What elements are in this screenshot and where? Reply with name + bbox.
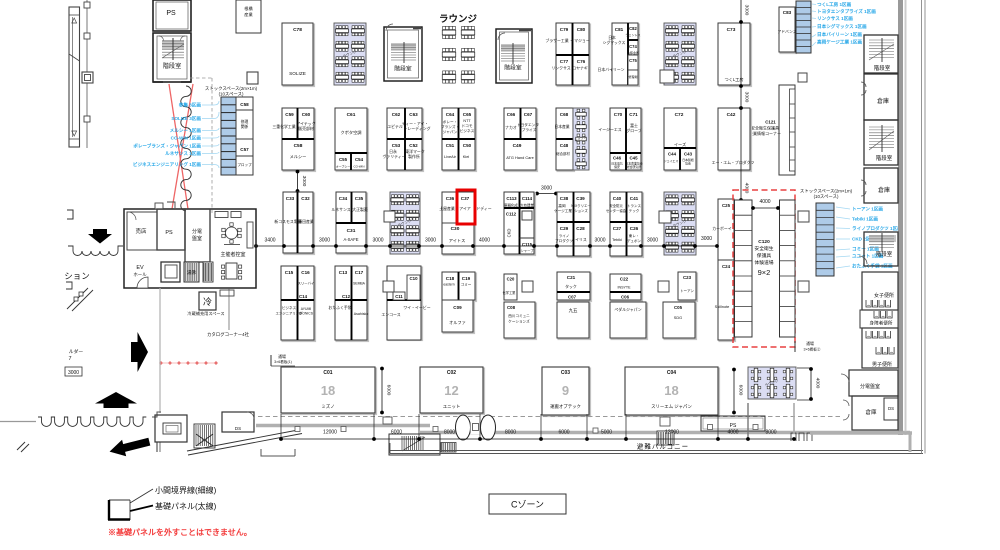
svg-text:高岡: 高岡 bbox=[558, 203, 566, 208]
svg-text:C48: C48 bbox=[560, 143, 569, 148]
svg-text:INSYTE: INSYTE bbox=[618, 286, 632, 290]
svg-text:ドディー: ドディー bbox=[476, 206, 491, 211]
svg-text:C45: C45 bbox=[629, 156, 638, 161]
svg-text:C75: C75 bbox=[629, 58, 637, 63]
svg-text:テック: テック bbox=[629, 208, 640, 213]
svg-text:SEMBA: SEMBA bbox=[353, 282, 366, 286]
svg-text:C13: C13 bbox=[339, 270, 348, 275]
svg-text:佐藤金属: 佐藤金属 bbox=[627, 50, 639, 55]
svg-text:C52: C52 bbox=[409, 143, 418, 148]
svg-text:大有建業: 大有建業 bbox=[520, 203, 534, 208]
svg-text:ブランズ・: ブランズ・ bbox=[441, 124, 459, 129]
svg-text:C34: C34 bbox=[339, 196, 348, 201]
svg-text:小間境界線(細線): 小間境界線(細線) bbox=[155, 485, 217, 495]
svg-text:メルシー: メルシー bbox=[290, 154, 307, 159]
svg-text:C39: C39 bbox=[576, 196, 585, 201]
svg-text:ライノプロダクツ 1区画: ライノプロダクツ 1区画 bbox=[852, 225, 902, 232]
svg-text:4000: 4000 bbox=[815, 378, 821, 389]
svg-text:盤室: 盤室 bbox=[192, 235, 202, 242]
svg-text:C58: C58 bbox=[294, 143, 303, 149]
svg-text:タック: タック bbox=[565, 284, 577, 289]
svg-text:18: 18 bbox=[664, 383, 678, 398]
svg-text:C41: C41 bbox=[630, 196, 639, 201]
svg-text:BIONICS: BIONICS bbox=[299, 312, 314, 316]
svg-text:4000: 4000 bbox=[727, 430, 738, 436]
svg-text:倉庫: 倉庫 bbox=[865, 408, 877, 416]
svg-text:A-SAFE: A-SAFE bbox=[343, 237, 358, 242]
svg-text:C16: C16 bbox=[301, 270, 310, 275]
svg-text:※基礎パネルを外すことはできません。: ※基礎パネルを外すことはできません。 bbox=[108, 527, 252, 537]
svg-text:エー・エム・プロダクツ: エー・エム・プロダクツ bbox=[712, 160, 755, 165]
svg-text:3000: 3000 bbox=[541, 186, 552, 192]
svg-text:ケージ工業: ケージ工業 bbox=[554, 208, 572, 213]
svg-text:C62: C62 bbox=[392, 112, 401, 117]
svg-text:ホール: ホール bbox=[133, 272, 147, 277]
svg-text:C04: C04 bbox=[667, 370, 676, 376]
svg-text:DS: DS bbox=[888, 406, 894, 411]
svg-text:eastern: eastern bbox=[443, 283, 454, 287]
svg-text:階段室: 階段室 bbox=[394, 65, 412, 73]
svg-text:運搬オプテック: 運搬オプテック bbox=[550, 403, 581, 410]
svg-text:C60: C60 bbox=[302, 112, 311, 117]
svg-text:日本バイリーン: 日本バイリーン bbox=[597, 67, 624, 72]
svg-text:C01: C01 bbox=[323, 370, 332, 376]
svg-text:男子便所: 男子便所 bbox=[872, 361, 892, 368]
svg-text:C05: C05 bbox=[674, 305, 683, 310]
svg-text:企業情報コーナー: 企業情報コーナー bbox=[749, 130, 781, 136]
svg-text:7: 7 bbox=[68, 356, 71, 362]
svg-text:大正製薬: 大正製薬 bbox=[352, 207, 368, 212]
svg-text:6000: 6000 bbox=[738, 385, 744, 396]
svg-text:C79: C79 bbox=[560, 27, 569, 32]
svg-text:分電: 分電 bbox=[192, 228, 202, 235]
svg-text:C20: C20 bbox=[507, 277, 515, 282]
svg-text:ションズ: ションズ bbox=[574, 208, 588, 213]
svg-text:ルネサンス: ルネサンス bbox=[331, 207, 350, 212]
svg-text:ポレー・: ポレー・ bbox=[443, 119, 458, 124]
svg-text:関係: 関係 bbox=[241, 124, 249, 129]
svg-text:トヨタエンタ: トヨタエンタ bbox=[517, 122, 539, 127]
svg-text:主催者控室: 主催者控室 bbox=[220, 251, 245, 258]
svg-text:C82: C82 bbox=[629, 26, 637, 31]
svg-text:3000: 3000 bbox=[372, 238, 383, 244]
svg-text:C66: C66 bbox=[507, 112, 516, 117]
svg-text:センター協会: センター協会 bbox=[606, 208, 627, 213]
svg-text:東レ・: 東レ・ bbox=[629, 233, 640, 238]
svg-text:C54: C54 bbox=[355, 157, 364, 162]
svg-text:ドコモ: ドコモ bbox=[461, 124, 472, 128]
svg-text:C08: C08 bbox=[507, 305, 516, 310]
svg-text:メルシー 1区画: メルシー 1区画 bbox=[170, 127, 202, 134]
svg-text:C38: C38 bbox=[560, 196, 569, 201]
svg-text:ション: ション bbox=[64, 271, 90, 281]
svg-text:日本産業: 日本産業 bbox=[554, 124, 569, 129]
svg-text:6000: 6000 bbox=[386, 385, 392, 396]
svg-text:カーボーイ: カーボーイ bbox=[712, 226, 732, 231]
svg-text:イージーエス: イージーエス bbox=[598, 127, 621, 132]
svg-text:西川コミュニ: 西川コミュニ bbox=[508, 313, 530, 318]
svg-text:C07: C07 bbox=[568, 295, 577, 300]
svg-text:階段室: 階段室 bbox=[163, 62, 182, 70]
svg-text:C55: C55 bbox=[339, 157, 348, 162]
svg-text:MIXクリエー: MIXクリエー bbox=[571, 203, 591, 208]
svg-text:Tebiki: Tebiki bbox=[612, 237, 622, 242]
svg-text:C10: C10 bbox=[409, 276, 418, 281]
svg-text:Tebiki 1区画: Tebiki 1区画 bbox=[852, 216, 878, 223]
svg-text:根橋: 根橋 bbox=[244, 5, 253, 12]
svg-text:C49: C49 bbox=[513, 143, 522, 149]
svg-text:避難バルコニー: 避難バルコニー bbox=[637, 442, 689, 451]
svg-text:カタログコーナー4社: カタログコーナー4社 bbox=[207, 331, 250, 338]
svg-text:プロップ: プロップ bbox=[237, 162, 252, 167]
svg-text:8000: 8000 bbox=[505, 430, 516, 436]
svg-text:C77: C77 bbox=[560, 59, 569, 64]
svg-text:12: 12 bbox=[444, 383, 458, 398]
svg-text:アドバンス: アドバンス bbox=[777, 29, 796, 34]
svg-text:3000: 3000 bbox=[68, 370, 79, 376]
svg-text:3000: 3000 bbox=[744, 92, 750, 103]
svg-text:C57: C57 bbox=[240, 147, 249, 152]
svg-text:倉庫: 倉庫 bbox=[877, 97, 889, 105]
svg-text:C28: C28 bbox=[576, 226, 585, 231]
svg-text:AYUMI: AYUMI bbox=[301, 307, 312, 311]
svg-text:C120: C120 bbox=[758, 239, 770, 245]
svg-text:C73: C73 bbox=[727, 27, 736, 33]
svg-text:イリス: イリス bbox=[575, 237, 587, 242]
svg-text:C37: C37 bbox=[461, 196, 470, 201]
svg-text:3000: 3000 bbox=[647, 238, 658, 244]
svg-text:九五: 九五 bbox=[569, 307, 578, 314]
svg-text:3000: 3000 bbox=[744, 5, 750, 16]
svg-text:C67: C67 bbox=[524, 112, 533, 117]
svg-text:倉庫: 倉庫 bbox=[878, 186, 890, 194]
svg-text:シャープ: シャープ bbox=[521, 248, 535, 253]
svg-text:C83: C83 bbox=[783, 10, 792, 15]
svg-text:冷: 冷 bbox=[203, 296, 212, 307]
svg-text:クボタ空調: クボタ空調 bbox=[341, 129, 362, 136]
svg-text:C14: C14 bbox=[299, 294, 308, 299]
svg-text:C78: C78 bbox=[293, 27, 302, 33]
svg-text:通場: 通場 bbox=[806, 341, 814, 346]
svg-text:キーブシー: キーブシー bbox=[336, 164, 350, 169]
svg-text:ユピテル: ユピテル bbox=[387, 124, 403, 129]
svg-text:トレーディング: トレーディング bbox=[404, 126, 431, 131]
svg-text:C113: C113 bbox=[506, 196, 517, 201]
svg-text:DS: DS bbox=[235, 426, 241, 431]
svg-text:ルネサンス 1区画: ルネサンス 1区画 bbox=[165, 150, 201, 157]
svg-text:SOLIZE 3区画: SOLIZE 3区画 bbox=[171, 115, 201, 122]
svg-text:参集 3区画: 参集 3区画 bbox=[179, 102, 202, 109]
svg-text:Skillnote: Skillnote bbox=[715, 304, 730, 309]
svg-text:おたふく手袋: おたふく手袋 bbox=[328, 305, 351, 310]
svg-text:階段室: 階段室 bbox=[874, 64, 891, 72]
svg-text:分電盤室: 分電盤室 bbox=[860, 383, 880, 390]
svg-text:階段室: 階段室 bbox=[876, 250, 893, 258]
svg-text:C30: C30 bbox=[451, 226, 460, 232]
svg-text:修理: 修理 bbox=[241, 119, 249, 124]
svg-text:日本バイリーン 1区画: 日本バイリーン 1区画 bbox=[817, 31, 862, 38]
svg-text:CO-WIN 1区画: CO-WIN 1区画 bbox=[171, 135, 202, 142]
svg-text:C58: C58 bbox=[240, 102, 249, 107]
svg-text:4000: 4000 bbox=[479, 238, 490, 244]
svg-text:ジャパン: ジャパン bbox=[443, 129, 458, 134]
svg-text:C19: C19 bbox=[462, 276, 471, 281]
svg-text:トーアン: トーアン bbox=[680, 288, 694, 293]
svg-text:車輌化成: 車輌化成 bbox=[504, 203, 518, 208]
svg-text:C33: C33 bbox=[286, 196, 295, 201]
svg-text:藤田産業: 藤田産業 bbox=[298, 219, 314, 224]
svg-text:C71: C71 bbox=[629, 112, 638, 117]
svg-text:ジェイエス: ジェイエス bbox=[664, 158, 679, 163]
svg-text:3×6看板②: 3×6看板② bbox=[804, 347, 821, 352]
svg-text:Kiei: Kiei bbox=[463, 154, 470, 159]
svg-text:ルダー: ルダー bbox=[69, 348, 84, 355]
svg-text:安全衛生: 安全衛生 bbox=[754, 245, 773, 252]
svg-text:12000: 12000 bbox=[323, 430, 337, 436]
svg-text:グローブ: グローブ bbox=[626, 128, 641, 133]
svg-text:保護具: 保護具 bbox=[757, 252, 772, 259]
svg-text:C50: C50 bbox=[463, 143, 472, 148]
svg-text:高岡ケージ工業 1区画: 高岡ケージ工業 1区画 bbox=[817, 39, 862, 46]
svg-text:体験道場: 体験道場 bbox=[754, 259, 773, 266]
svg-text:C23: C23 bbox=[683, 275, 692, 280]
svg-text:湯沸: 湯沸 bbox=[187, 269, 196, 276]
svg-text:5000: 5000 bbox=[601, 430, 612, 436]
svg-text:C42: C42 bbox=[727, 112, 736, 118]
svg-text:C18: C18 bbox=[446, 276, 455, 281]
svg-text:ラウンジ: ラウンジ bbox=[439, 14, 478, 25]
svg-text:C65: C65 bbox=[463, 112, 472, 117]
svg-text:C81: C81 bbox=[615, 27, 624, 32]
svg-text:9: 9 bbox=[562, 383, 569, 398]
svg-text:ビジネス: ビジネス bbox=[282, 305, 297, 310]
svg-text:リンクサス: リンクサス bbox=[551, 66, 570, 71]
svg-text:C02: C02 bbox=[447, 370, 456, 376]
svg-text:総合部材: 総合部材 bbox=[556, 151, 570, 156]
svg-text:ライノ: ライノ bbox=[559, 233, 570, 238]
svg-text:C70: C70 bbox=[614, 112, 623, 117]
svg-text:C27: C27 bbox=[613, 226, 622, 231]
svg-text:C17: C17 bbox=[355, 270, 364, 275]
svg-text:C09: C09 bbox=[453, 305, 462, 310]
svg-text:C21: C21 bbox=[567, 275, 576, 280]
svg-text:C61: C61 bbox=[347, 112, 356, 118]
svg-text:C68: C68 bbox=[560, 112, 569, 117]
svg-text:リンクサス 1区画: リンクサス 1区画 bbox=[817, 15, 853, 22]
svg-text:C112: C112 bbox=[506, 212, 517, 217]
svg-text:C31: C31 bbox=[347, 228, 356, 234]
svg-text:トヨタエンタプライズ 1区画: トヨタエンタプライズ 1区画 bbox=[817, 8, 876, 15]
svg-text:6000: 6000 bbox=[391, 430, 402, 436]
svg-text:ATG Hand Care: ATG Hand Care bbox=[506, 155, 534, 160]
svg-text:階段室: 階段室 bbox=[876, 154, 893, 162]
svg-text:エンコース: エンコース bbox=[381, 312, 400, 317]
svg-text:保安: 保安 bbox=[614, 164, 620, 169]
svg-text:C11: C11 bbox=[395, 294, 403, 299]
svg-text:日本シグマックス 1区画: 日本シグマックス 1区画 bbox=[817, 23, 867, 30]
svg-text:CO-WIN: CO-WIN bbox=[354, 165, 365, 169]
svg-text:C25: C25 bbox=[722, 203, 731, 208]
svg-text:8000: 8000 bbox=[765, 430, 776, 436]
svg-text:プライズ: プライズ bbox=[522, 127, 537, 132]
svg-text:身障者便所: 身障者便所 bbox=[870, 320, 893, 327]
svg-text:C26: C26 bbox=[630, 226, 639, 231]
svg-text:C59: C59 bbox=[285, 112, 294, 117]
svg-text:6000: 6000 bbox=[558, 430, 569, 436]
svg-text:SOLIZE: SOLIZE bbox=[289, 71, 306, 76]
svg-text:C03: C03 bbox=[561, 370, 570, 376]
svg-text:C44: C44 bbox=[668, 152, 677, 157]
svg-text:販売部材: 販売部材 bbox=[298, 126, 314, 131]
svg-text:総合研究所: 総合研究所 bbox=[627, 164, 642, 169]
svg-text:C46: C46 bbox=[613, 156, 622, 161]
svg-text:C12: C12 bbox=[342, 294, 351, 299]
svg-text:ウェントス: ウェントス bbox=[625, 32, 640, 37]
svg-text:コミー: コミー bbox=[461, 283, 472, 287]
svg-text:PS: PS bbox=[166, 10, 176, 17]
svg-text:ユニット: ユニット bbox=[443, 404, 461, 409]
svg-text:ペダルジャパン: ペダルジャパン bbox=[614, 307, 641, 312]
svg-text:土屋産業: 土屋産業 bbox=[439, 206, 455, 211]
svg-text:4000: 4000 bbox=[744, 183, 750, 194]
svg-text:12000: 12000 bbox=[665, 430, 679, 436]
svg-text:C64: C64 bbox=[446, 112, 455, 117]
svg-text:化学工業: 化学工業 bbox=[503, 290, 517, 295]
svg-text:3000: 3000 bbox=[701, 236, 712, 242]
svg-text:C121: C121 bbox=[765, 120, 776, 125]
svg-text:8000: 8000 bbox=[444, 430, 455, 436]
svg-text:C32: C32 bbox=[301, 196, 310, 201]
svg-text:女子便所: 女子便所 bbox=[874, 292, 894, 299]
svg-text:4000: 4000 bbox=[759, 199, 770, 205]
svg-text:3400: 3400 bbox=[264, 238, 275, 244]
svg-text:C24: C24 bbox=[722, 264, 731, 269]
svg-text:産業: 産業 bbox=[244, 11, 253, 18]
svg-text:安全衛生保護具: 安全衛生保護具 bbox=[751, 125, 779, 131]
svg-text:C53: C53 bbox=[392, 143, 401, 148]
svg-text:スリーバイ: スリーバイ bbox=[298, 281, 315, 286]
svg-text:9×2: 9×2 bbox=[758, 268, 771, 277]
svg-text:ナカオ: ナカオ bbox=[505, 125, 517, 130]
svg-text:C80: C80 bbox=[577, 27, 586, 32]
svg-text:C06: C06 bbox=[621, 295, 630, 300]
svg-text:ビジネスエンジニアリング 1区画: ビジネスエンジニアリング 1区画 bbox=[133, 161, 202, 168]
svg-text:ヴァリティー: ヴァリティー bbox=[382, 154, 405, 159]
svg-text:3000: 3000 bbox=[319, 238, 330, 244]
svg-text:Cゾーン: Cゾーン bbox=[511, 500, 544, 510]
svg-text:ワイ・イービー: ワイ・イービー bbox=[403, 305, 430, 310]
svg-text:C72: C72 bbox=[675, 112, 684, 118]
svg-text:C36: C36 bbox=[446, 196, 455, 201]
svg-text:SDG: SDG bbox=[674, 315, 682, 320]
svg-text:プロダクツ: プロダクツ bbox=[555, 238, 573, 243]
svg-text:3000: 3000 bbox=[594, 238, 605, 244]
svg-text:PS: PS bbox=[165, 230, 173, 236]
svg-text:スリーエム ジャパン: スリーエム ジャパン bbox=[651, 404, 692, 409]
svg-text:冷蔵補充用スペース: 冷蔵補充用スペース bbox=[187, 310, 224, 317]
svg-text:基礎パネル(太線): 基礎パネル(太線) bbox=[155, 501, 217, 511]
svg-text:製作所: 製作所 bbox=[408, 154, 420, 159]
svg-text:ポレーブランズ・ジャパン 1区画: ポレーブランズ・ジャパン 1区画 bbox=[133, 143, 201, 150]
svg-text:階段室: 階段室 bbox=[504, 64, 522, 72]
svg-text:(10スペース): (10スペース) bbox=[219, 92, 244, 97]
svg-text:C51: C51 bbox=[446, 143, 455, 148]
svg-text:C114: C114 bbox=[522, 196, 533, 201]
svg-text:CKD: CKD bbox=[507, 229, 512, 238]
svg-text:安全防災: 安全防災 bbox=[609, 203, 623, 208]
svg-text:アイア: アイア bbox=[459, 206, 471, 211]
svg-text:PS: PS bbox=[730, 423, 737, 429]
svg-text:C63: C63 bbox=[409, 112, 418, 117]
svg-text:協会: 協会 bbox=[685, 161, 691, 166]
svg-text:修理場: 修理場 bbox=[628, 74, 637, 79]
svg-text:つくL工房 1区画: つくL工房 1区画 bbox=[817, 1, 852, 8]
svg-text:ケーションズ: ケーションズ bbox=[508, 319, 530, 324]
svg-text:日本: 日本 bbox=[608, 35, 616, 40]
svg-text:イマジョー: イマジョー bbox=[570, 38, 590, 43]
svg-text:シグマックス: シグマックス bbox=[603, 40, 626, 45]
svg-text:C22: C22 bbox=[620, 277, 629, 282]
svg-text:コヤナギ: コヤナギ bbox=[572, 66, 588, 71]
svg-text:C43: C43 bbox=[684, 152, 693, 157]
svg-text:3000: 3000 bbox=[301, 176, 307, 187]
svg-text:ブラザー工業: ブラザー工業 bbox=[545, 38, 568, 43]
svg-text:C40: C40 bbox=[613, 196, 622, 201]
svg-text:C76: C76 bbox=[577, 59, 586, 64]
svg-text:3000: 3000 bbox=[425, 238, 436, 244]
svg-text:C29: C29 bbox=[560, 226, 569, 231]
svg-text:C35: C35 bbox=[355, 196, 364, 201]
svg-text:EV: EV bbox=[136, 265, 144, 271]
svg-text:トランス: トランス bbox=[627, 203, 642, 208]
svg-text:(10スペース): (10スペース) bbox=[814, 194, 839, 199]
svg-text:トーアン 1区画: トーアン 1区画 bbox=[852, 206, 883, 213]
svg-text:C15: C15 bbox=[285, 270, 294, 275]
svg-text:イーズ: イーズ bbox=[674, 141, 686, 148]
svg-text:ビジネス: ビジネス bbox=[460, 128, 475, 133]
svg-text:3×6看板(1): 3×6看板(1) bbox=[274, 359, 292, 364]
svg-text:NTT: NTT bbox=[463, 119, 471, 123]
svg-text:ミズノ: ミズノ bbox=[321, 403, 334, 410]
svg-text:通場: 通場 bbox=[278, 354, 286, 359]
svg-text:デュポン: デュポン bbox=[627, 238, 642, 243]
svg-text:Asahisko: Asahisko bbox=[354, 312, 369, 316]
svg-text:売店: 売店 bbox=[135, 227, 147, 235]
svg-text:C74: C74 bbox=[629, 44, 637, 49]
svg-text:三重化学工業: 三重化学工業 bbox=[272, 124, 295, 129]
svg-text:18: 18 bbox=[321, 383, 335, 398]
svg-text:LiveAir: LiveAir bbox=[444, 154, 457, 159]
